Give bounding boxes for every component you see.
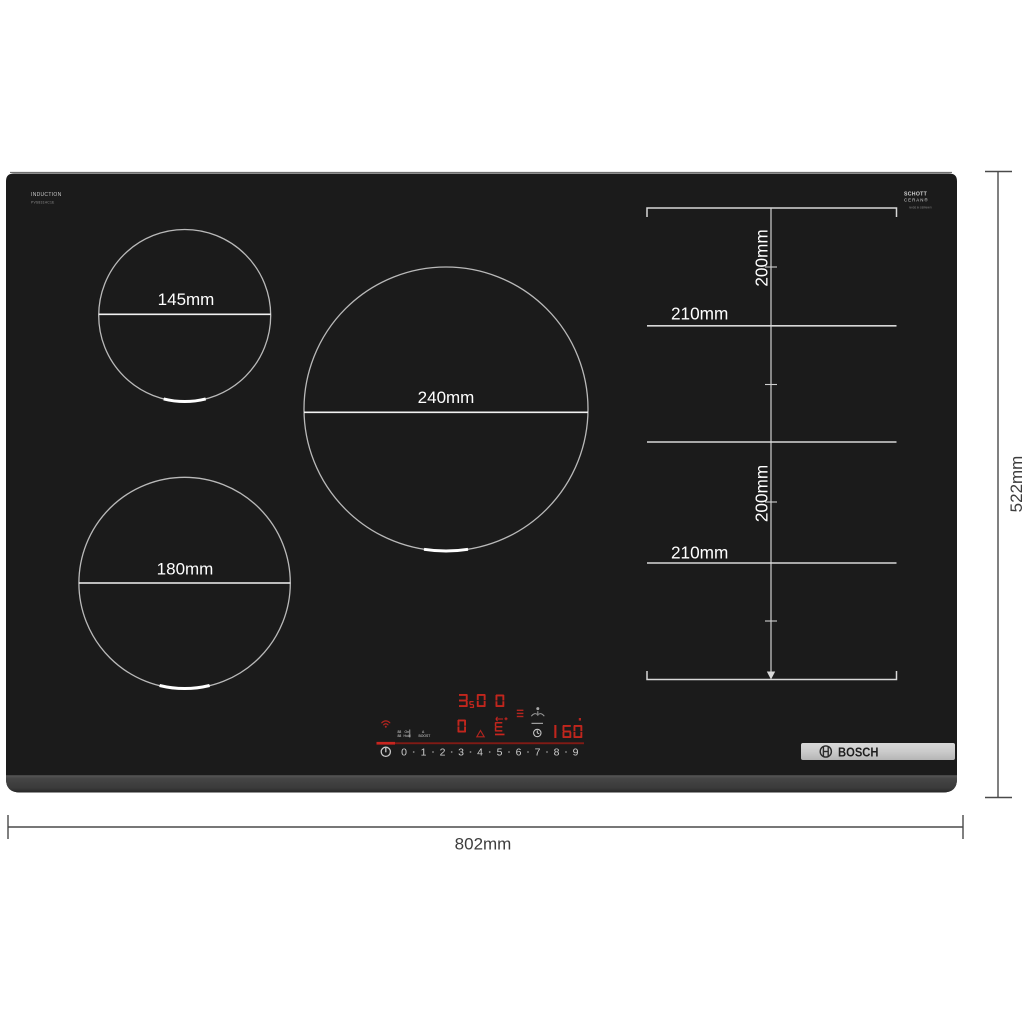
svg-text:6: 6: [516, 747, 522, 759]
svg-text:2: 2: [440, 747, 446, 759]
svg-text:7: 7: [535, 747, 541, 759]
svg-text:CERAN®: CERAN®: [904, 198, 929, 203]
svg-text:INDUCTION: INDUCTION: [31, 192, 62, 198]
svg-text:210mm: 210mm: [671, 304, 728, 324]
svg-text:0: 0: [401, 747, 407, 759]
svg-text:PVS831HC1E: PVS831HC1E: [31, 201, 55, 205]
svg-text:180mm: 180mm: [157, 560, 214, 579]
svg-text:MADE IN GERMANY: MADE IN GERMANY: [909, 206, 932, 209]
svg-text:BOSCH: BOSCH: [838, 744, 879, 759]
svg-text:200mm: 200mm: [752, 229, 772, 286]
svg-text:240mm: 240mm: [418, 388, 475, 407]
svg-text:88: 88: [398, 734, 402, 738]
svg-text:5: 5: [497, 747, 503, 759]
svg-text:9: 9: [573, 747, 579, 759]
svg-text:210mm: 210mm: [671, 543, 728, 563]
svg-text:4: 4: [477, 747, 483, 759]
svg-text:1: 1: [421, 747, 427, 759]
svg-text:145mm: 145mm: [158, 290, 215, 309]
svg-text:3: 3: [458, 747, 464, 759]
svg-text:200mm: 200mm: [752, 465, 772, 522]
svg-text:BOOST: BOOST: [419, 734, 431, 738]
svg-text:522mm: 522mm: [1007, 456, 1024, 513]
svg-text:802mm: 802mm: [455, 835, 512, 854]
svg-text:8: 8: [554, 747, 560, 759]
